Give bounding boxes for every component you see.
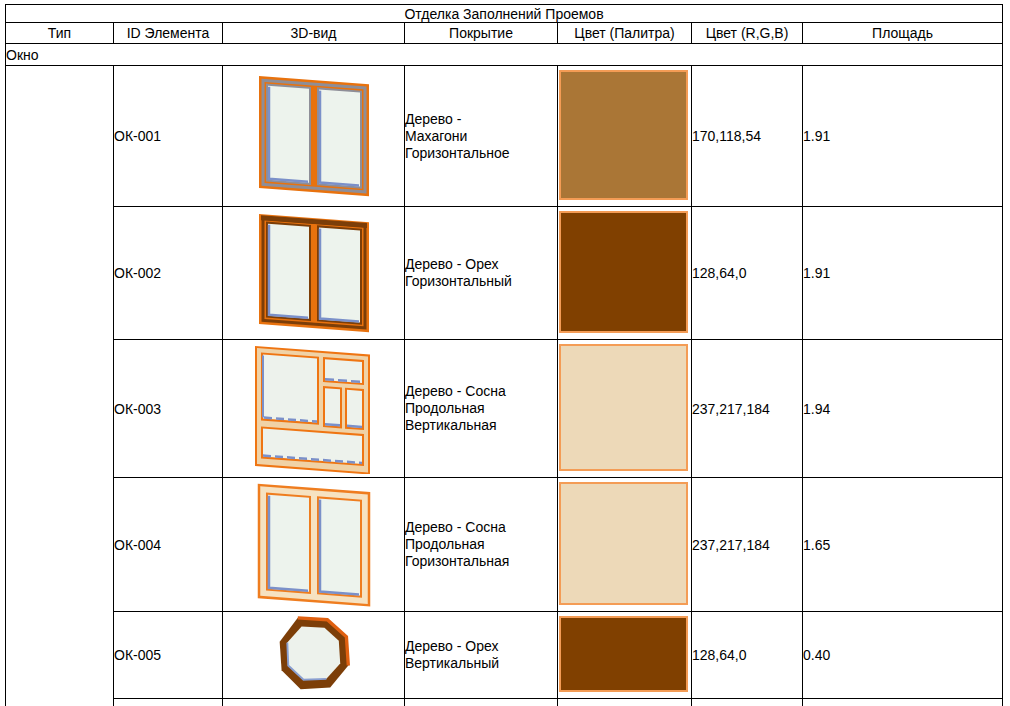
partial-row [6,699,1003,706]
empty-cell [558,699,692,706]
col-header-3d-view: 3D-вид [223,23,405,44]
group-label-window: Окно [6,44,1003,66]
window-octagon-walnut-icon [272,614,356,696]
coating-cell: Дерево - Сосна Продольная Вертикальная [405,340,558,478]
table-row: ОК-001 Дерево - Махагони Горизонтальное … [6,66,1003,207]
col-header-area: Площадь [803,23,1003,44]
area-cell: 1.94 [803,340,1003,478]
rgb-cell: 237,217,184 [692,340,803,478]
group-row: Окно [6,44,1003,66]
palette-cell [558,207,692,340]
element-id-cell: ОК-002 [114,207,223,340]
col-header-coating: Покрытие [405,23,558,44]
table-row: ОК-003 Дерево - Сосна Продольная [6,340,1003,478]
area-cell: 1.91 [803,66,1003,207]
coating-cell: Дерево - Орех Вертикальный [405,612,558,699]
color-swatch [559,70,688,200]
element-id-cell: ОК-003 [114,340,223,478]
title-row: Отделка Заполнений Проемов [6,5,1003,23]
window-two-pane-walnut-icon [256,211,372,335]
coating-cell: Дерево - Орех Горизонтальный [405,207,558,340]
palette-cell [558,478,692,612]
rgb-cell: 237,217,184 [692,478,803,612]
element-id-cell: ОК-005 [114,612,223,699]
coating-cell: Дерево - Махагони Горизонтальное [405,66,558,207]
element-id-cell: ОК-001 [114,66,223,207]
color-swatch [559,344,688,471]
empty-cell [405,699,558,706]
col-header-color-rgb: Цвет (R,G,B) [692,23,803,44]
color-swatch [559,616,688,692]
element-id-cell: ОК-004 [114,478,223,612]
window-two-pane-mahogany-icon [256,73,372,200]
empty-cell [223,699,405,706]
view-cell [223,207,405,340]
area-cell: 0.40 [803,612,1003,699]
area-cell: 1.65 [803,478,1003,612]
palette-cell [558,340,692,478]
empty-cell [114,699,223,706]
col-header-color-palette: Цвет (Палитра) [558,23,692,44]
palette-cell [558,612,692,699]
empty-cell [692,699,803,706]
rgb-cell: 128,64,0 [692,207,803,340]
palette-cell [558,66,692,207]
schedule-title: Отделка Заполнений Проемов [6,5,1003,23]
window-multi-pane-pine-icon [253,344,374,474]
empty-cell [803,699,1003,706]
schedule-sheet: Отделка Заполнений Проемов Тип ID Элемен… [5,4,1003,706]
view-cell [223,478,405,612]
col-header-element-id: ID Элемента [114,23,223,44]
view-cell [223,66,405,207]
openings-finish-schedule: Отделка Заполнений Проемов Тип ID Элемен… [5,4,1003,706]
color-swatch [559,211,688,333]
area-cell: 1.91 [803,207,1003,340]
table-row: ОК-005 Дерево - Орех Вертикальный 128,64… [6,612,1003,699]
view-cell [223,612,405,699]
col-header-type: Тип [6,23,114,44]
table-row: ОК-004 Дерево - Сосна Продольная Горизон… [6,478,1003,612]
rgb-cell: 128,64,0 [692,612,803,699]
rgb-cell: 170,118,54 [692,66,803,207]
window-two-pane-pine-icon [256,482,372,608]
color-swatch [559,482,688,605]
type-merged-cell [6,66,114,706]
coating-cell: Дерево - Сосна Продольная Горизонтальная [405,478,558,612]
table-row: ОК-002 Дерево - Орех Горизонтальный 128,… [6,207,1003,340]
header-row: Тип ID Элемента 3D-вид Покрытие Цвет (Па… [6,23,1003,44]
view-cell [223,340,405,478]
